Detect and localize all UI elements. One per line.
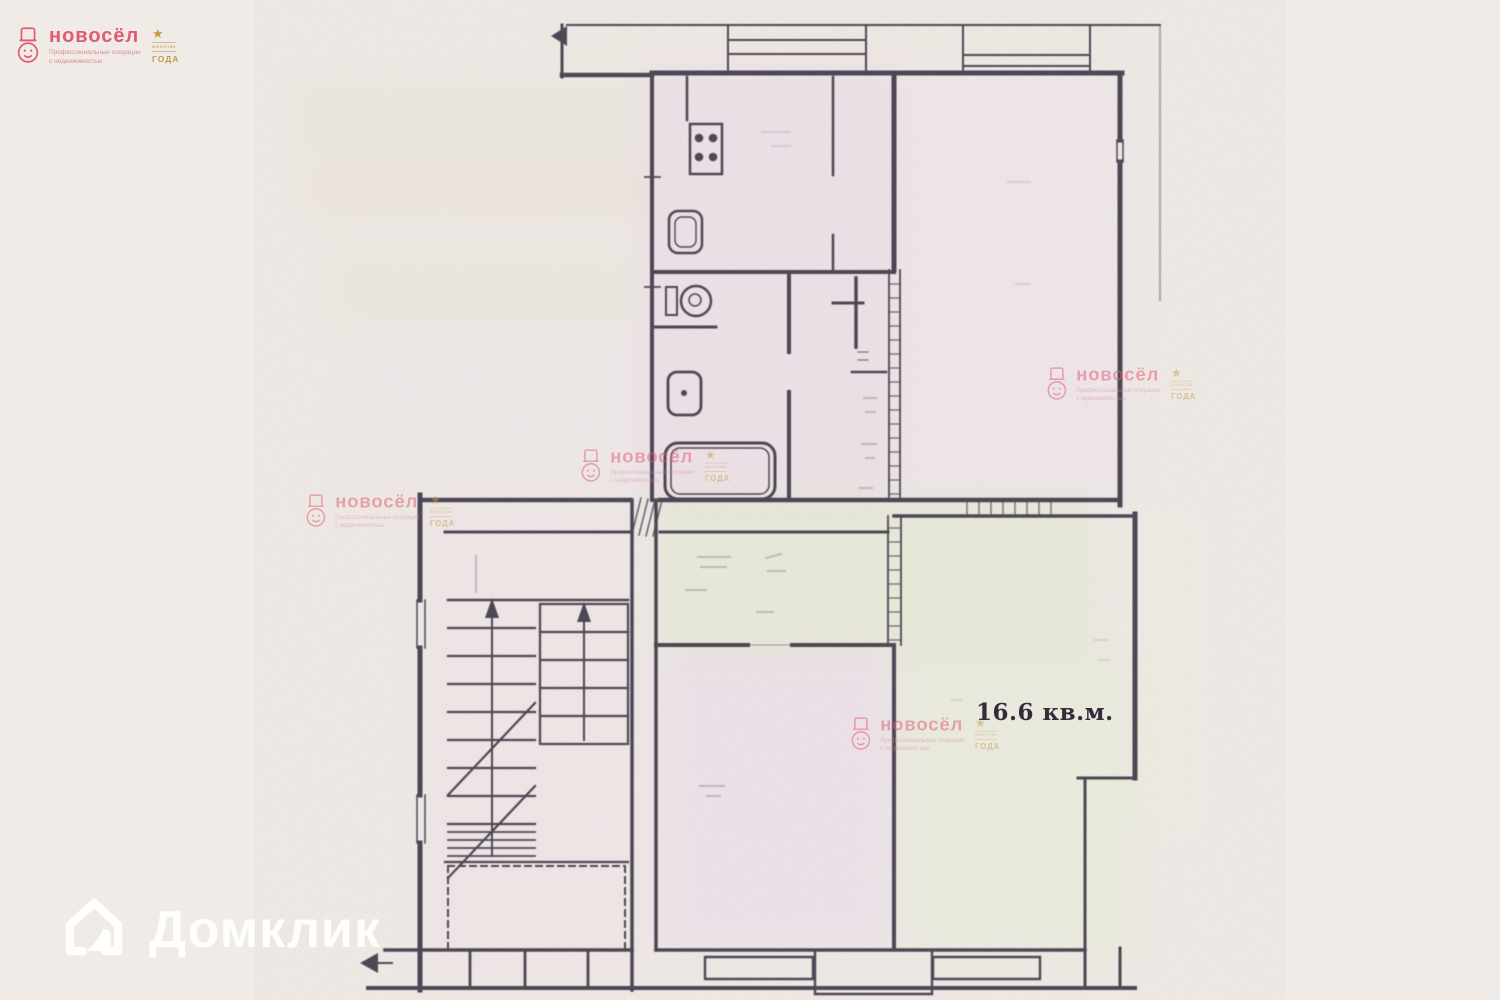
novosel-tagline: Профессиональные операции с недвижимость… (610, 469, 698, 485)
award-caption: агентство (152, 42, 176, 52)
award-caption: агентство (1171, 381, 1193, 390)
novosel-watermark: новосёл Профессиональные операции с недв… (848, 716, 986, 753)
award-star-icon: ★ (152, 27, 164, 40)
domclick-name: Домклик (149, 900, 381, 960)
novosel-watermark: новосёл Профессиональные операции с недв… (578, 448, 716, 485)
award-caption: агентство (430, 508, 452, 517)
novosel-name: новосёл (335, 493, 423, 511)
novosel-name: новосёл (1076, 366, 1164, 384)
floorplan-scan: новосёл Профессиональные операции с недв… (0, 0, 1500, 1000)
novosel-mascot-icon (1044, 366, 1070, 403)
novosel-logo: новосёл Профессиональные операции с недв… (14, 26, 164, 67)
page: { "page": { "paper_color": "#f0ebe6", "i… (0, 0, 1500, 1000)
novosel-name: новосёл (610, 448, 698, 466)
domclick-house-icon (55, 888, 133, 971)
award-star-icon: ★ (1171, 367, 1182, 379)
award-caption: агентство (975, 731, 997, 740)
award-star-icon: ★ (430, 494, 441, 506)
award-word: ГОДА (975, 742, 1000, 751)
award-word: ГОДА (1171, 392, 1196, 401)
novosel-tagline: Профессиональные операции с недвижимость… (49, 49, 145, 67)
novosel-tagline: Профессиональные операции с недвижимость… (335, 514, 423, 530)
award-badge: ★ агентство ГОДА (1171, 367, 1196, 401)
award-badge: ★ агентство ГОДА (152, 27, 179, 64)
award-word: ГОДА (152, 54, 179, 64)
floorplan-svg (0, 0, 1500, 1000)
award-badge: ★ агентство ГОДА (705, 449, 730, 483)
award-word: ГОДА (430, 519, 455, 528)
novosel-watermark: новосёл Профессиональные операции с недв… (1044, 366, 1182, 403)
award-star-icon: ★ (705, 449, 716, 461)
award-caption: агентство (705, 463, 727, 472)
domclick-watermark: Домклик (55, 888, 381, 971)
room-area-label: 16.6 кв.м. (976, 699, 1114, 726)
award-word: ГОДА (705, 474, 730, 483)
novosel-mascot-icon (303, 493, 329, 530)
paper-grain (340, 0, 1200, 1000)
novosel-mascot-icon (14, 26, 42, 66)
novosel-tagline: Профессиональные операции с недвижимость… (880, 737, 968, 753)
novosel-name: новосёл (880, 716, 968, 734)
novosel-mascot-icon (578, 448, 604, 485)
novosel-mascot-icon (848, 716, 874, 753)
novosel-name: новосёл (49, 26, 145, 46)
award-badge: ★ агентство ГОДА (430, 494, 455, 528)
novosel-tagline: Профессиональные операции с недвижимость… (1076, 387, 1164, 403)
novosel-watermark: новосёл Профессиональные операции с недв… (303, 493, 441, 530)
